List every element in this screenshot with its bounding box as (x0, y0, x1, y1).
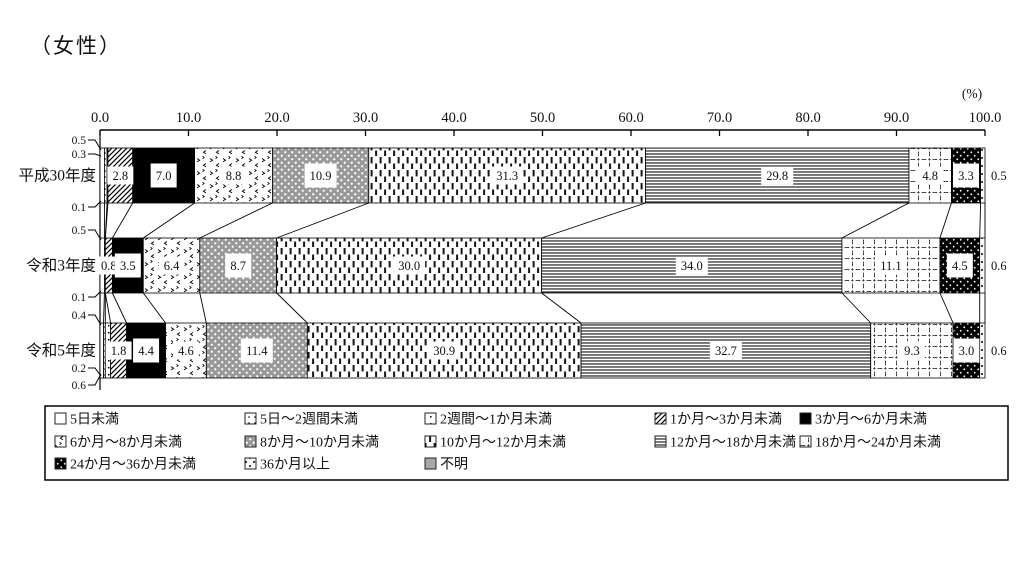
segment-value-label: 7.0 (156, 169, 172, 183)
segment-value-label: 4.6 (178, 344, 194, 358)
segment-value-label: 31.3 (496, 169, 518, 183)
right-outside-label: 0.6 (991, 344, 1007, 358)
axis-tick-label: 20.0 (264, 110, 289, 126)
segment-value-label: 11.4 (246, 344, 268, 358)
segment-value-label: 8.7 (230, 259, 246, 273)
stacked-bar-chart-canvas: (%)0.010.020.030.040.050.060.070.080.090… (0, 0, 1024, 585)
legend-swatch (425, 413, 436, 424)
right-outside-label: 0.6 (991, 259, 1007, 273)
legend-swatch (425, 436, 436, 447)
segment-value-label: 4.4 (138, 344, 154, 358)
axis-tick-label: 60.0 (618, 110, 643, 126)
legend-swatch (655, 413, 666, 424)
legend-item-label: 5日未満 (70, 412, 119, 428)
axis-tick-label: 10.0 (176, 110, 201, 126)
segment-value-label: 4.5 (952, 259, 968, 273)
series-connector-line (143, 293, 165, 323)
callout-label: 0.3 (72, 149, 87, 161)
axis-tick-label: 30.0 (353, 110, 378, 126)
segment-value-label: 0.8 (101, 259, 117, 273)
legend-item-label: 1か月～3か月未満 (670, 412, 782, 428)
callout-label: 0.5 (72, 225, 87, 237)
axis-tick-label: 100.0 (969, 110, 1002, 126)
axis-tick-label: 40.0 (441, 110, 466, 126)
callout-leader-line (88, 230, 101, 240)
legend-swatch (800, 436, 811, 447)
series-connector-line (200, 203, 273, 238)
segment-value-label: 6.4 (164, 259, 180, 273)
bar-segment (100, 323, 104, 378)
segment-value-label: 30.9 (433, 344, 455, 358)
segment-value-label: 30.0 (398, 259, 420, 273)
legend-item-label: 36か月以上 (260, 457, 330, 473)
callout-leader-line (88, 315, 101, 325)
bar-segment (981, 148, 985, 203)
series-connector-line (104, 293, 105, 323)
series-connector-line (842, 203, 909, 238)
legend-swatch (55, 458, 66, 469)
series-connector-line (940, 203, 951, 238)
callout-label: 0.5 (72, 135, 87, 147)
series-connector-line (200, 293, 207, 323)
percent-unit-label: (%) (962, 86, 982, 101)
series-connector-line (542, 293, 581, 323)
axis-tick-label: 50.0 (530, 110, 555, 126)
bar-segment (980, 323, 985, 378)
axis-tick-label: 70.0 (707, 110, 732, 126)
legend-item-label: 不明 (440, 458, 468, 473)
right-outside-label: 0.5 (991, 169, 1007, 183)
series-connector-line (112, 293, 126, 323)
callout-label: 0.2 (72, 363, 87, 375)
category-label: 令和3年度 (26, 257, 96, 275)
legend-item-label: 3か月～6か月未満 (815, 412, 927, 428)
series-connector-line (940, 293, 953, 323)
series-connector-line (105, 293, 110, 323)
callout-label: 0.6 (72, 380, 87, 392)
segment-value-label: 34.0 (681, 259, 703, 273)
category-label: 令和5年度 (26, 342, 96, 360)
segment-value-label: 3.0 (959, 344, 975, 358)
callout-leader-line (88, 368, 101, 376)
series-connector-line (277, 293, 308, 323)
segment-value-label: 8.8 (226, 169, 242, 183)
legend-swatch (245, 458, 256, 469)
legend-item-label: 18か月～24か月未満 (815, 435, 941, 451)
bar-segment (980, 238, 985, 293)
legend-swatch (55, 436, 66, 447)
legend-item-label: 10か月～12か月未満 (440, 435, 566, 451)
callout-leader-line (88, 291, 101, 297)
legend-item-label: 6か月～8か月未満 (70, 435, 182, 451)
segment-value-label: 4.8 (922, 169, 938, 183)
segment-value-label: 2.8 (113, 169, 129, 183)
axis-tick-label: 0.0 (91, 110, 109, 126)
legend-swatch (245, 413, 256, 424)
callout-leader-line (88, 154, 101, 156)
callout-label: 0.1 (72, 292, 87, 304)
callout-leader-line (88, 374, 101, 385)
legend-swatch (55, 413, 66, 424)
callout-leader-line (88, 140, 101, 150)
callout-leader-line (88, 201, 101, 207)
series-connector-line (542, 203, 646, 238)
segment-value-label: 11.1 (880, 259, 901, 273)
segment-value-label: 3.3 (958, 169, 974, 183)
legend-swatch (800, 413, 811, 424)
series-connector-line (277, 203, 369, 238)
series-connector-line (842, 293, 871, 323)
legend-item-label: 5日～2週間未満 (260, 412, 358, 428)
legend-item-label: 8か月～10か月未満 (260, 435, 379, 451)
segment-value-label: 1.8 (111, 344, 127, 358)
axis-tick-label: 80.0 (795, 110, 820, 126)
legend-swatch (245, 436, 256, 447)
segment-value-label: 3.5 (120, 259, 136, 273)
series-connector-line (980, 203, 981, 238)
category-label: 平成30年度 (18, 167, 96, 185)
legend-item-label: 2週間～1か月未満 (440, 412, 552, 428)
series-connector-line (112, 203, 132, 238)
segment-value-label: 10.9 (310, 169, 332, 183)
legend-item-label: 24か月～36か月未満 (70, 457, 196, 473)
legend-item-label: 12か月～18か月未満 (670, 435, 796, 451)
legend-swatch (425, 458, 436, 469)
page: （女性） (0, 0, 1024, 585)
callout-label: 0.4 (72, 310, 87, 322)
axis-tick-label: 90.0 (884, 110, 909, 126)
series-connector-line (143, 203, 194, 238)
segment-value-label: 32.7 (715, 344, 737, 358)
segment-value-label: 29.8 (766, 169, 788, 183)
segment-value-label: 9.3 (904, 344, 920, 358)
callout-label: 0.1 (72, 202, 87, 214)
legend-swatch (655, 436, 666, 447)
